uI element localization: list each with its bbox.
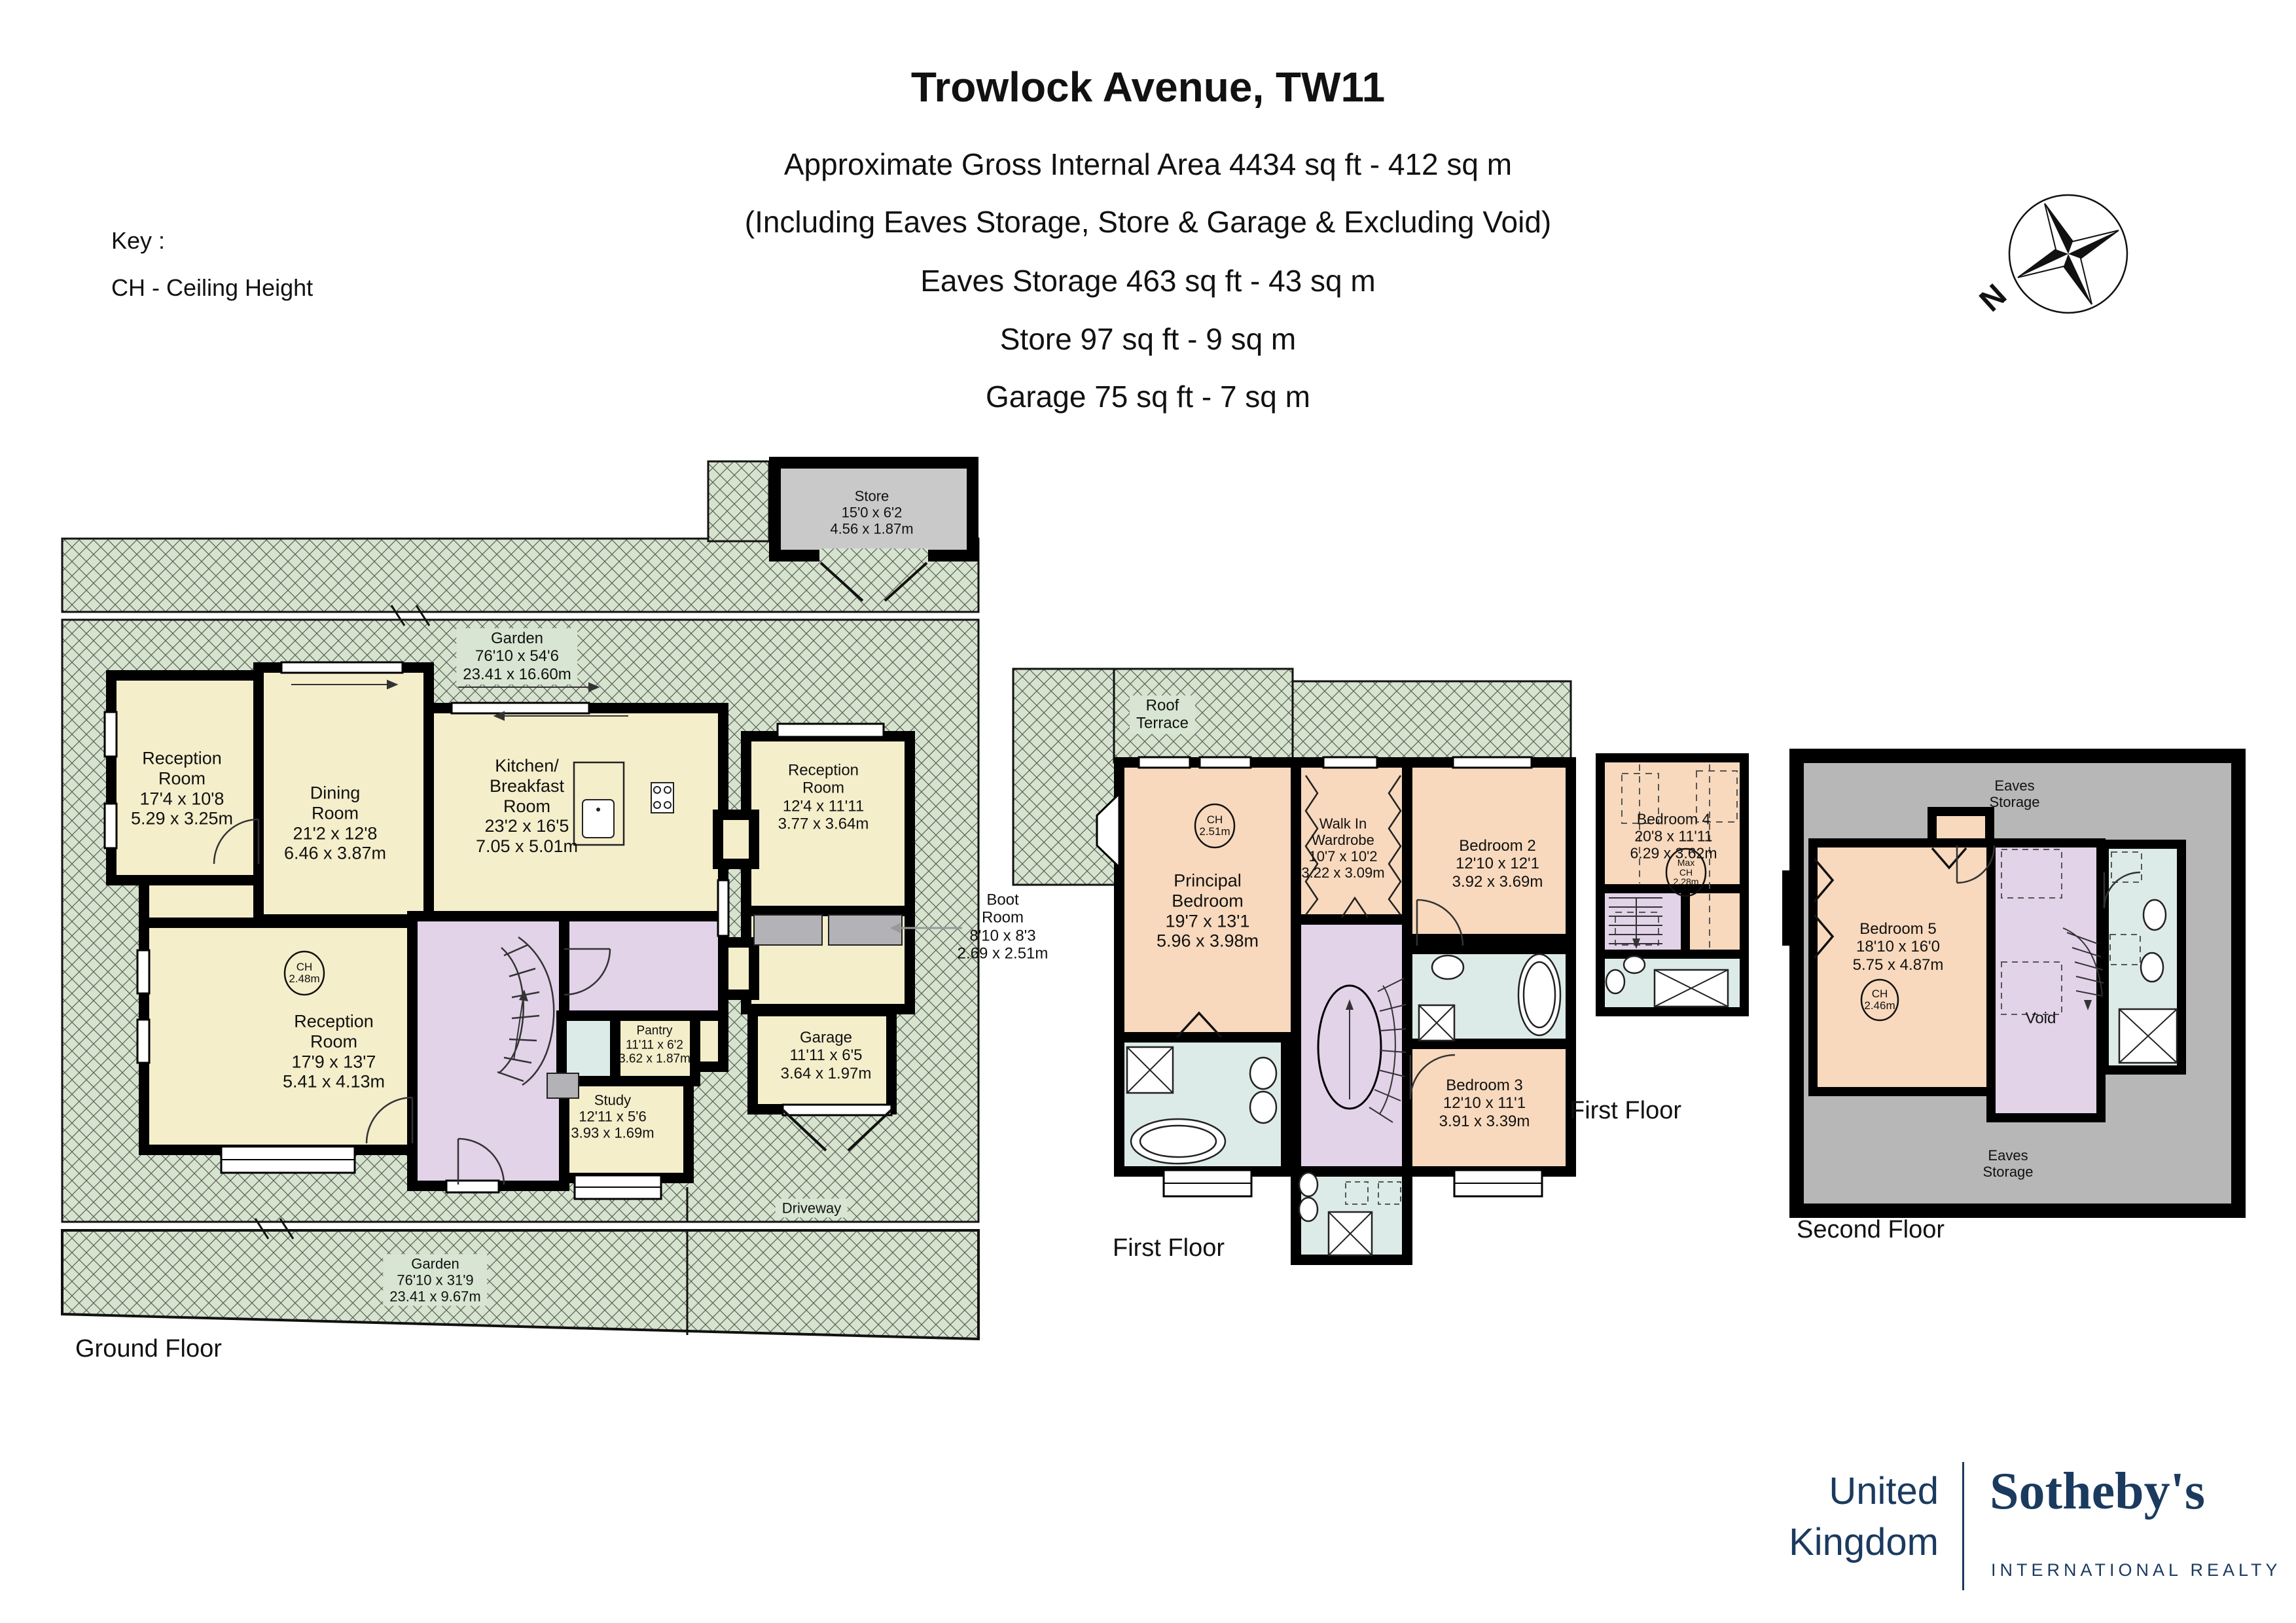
driveway-label: Driveway	[776, 1198, 848, 1217]
max-ceiling-height-badge: Max CH 2.28m	[1674, 858, 1699, 887]
room-label-garage: Garage 11'11 x 6'5 3.64 x 1.97m	[781, 1029, 872, 1082]
room-label-reception-right: Reception Room 12'4 x 11'11 3.77 x 3.64m	[778, 761, 869, 832]
room-label-principal: Principal Bedroom 19'7 x 13'1 5.96 x 3.9…	[1157, 870, 1259, 951]
room-label-study: Study 12'11 x 5'6 3.93 x 1.69m	[571, 1092, 654, 1141]
including-line: (Including Eaves Storage, Store & Garage…	[0, 204, 2296, 240]
eaves-storage-top-label: Eaves Storage	[1989, 777, 2039, 810]
room-label-bedroom5: Bedroom 5 18'10 x 16'0 5.75 x 4.87m	[1853, 920, 1944, 974]
room-label-bedroom2: Bedroom 2 12'10 x 12'1 3.92 x 3.69m	[1452, 837, 1543, 891]
room-label-reception-top: Reception Room 17'4 x 10'8 5.29 x 3.25m	[131, 748, 233, 829]
first-floor-small-caption: First Floor	[1570, 1097, 1681, 1125]
ceiling-height-badge-ground: CH 2.48m	[289, 961, 319, 985]
brand-tagline: INTERNATIONAL REALTY	[1991, 1560, 2282, 1580]
room-label-store: Store 15'0 x 6'2 4.56 x 1.87m	[830, 488, 913, 537]
room-label-pantry: Pantry 11'11 x 6'2 3.62 x 1.87m	[619, 1024, 691, 1067]
ceiling-height-badge-second: CH 2.46m	[1864, 988, 1895, 1012]
brand-region: United Kingdom	[1789, 1466, 1939, 1568]
first-floor-caption: First Floor	[1113, 1234, 1225, 1262]
eaves-storage-bottom-label: Eaves Storage	[1982, 1147, 2033, 1180]
second-floor-plan	[1782, 756, 2238, 1211]
void-label: Void	[2026, 1009, 2056, 1027]
second-floor-caption: Second Floor	[1797, 1216, 1945, 1244]
key-legend: Key : CH - Ceiling Height	[111, 217, 313, 312]
floorplan-page: Trowlock Avenue, TW11 Approximate Gross …	[0, 0, 2296, 1623]
gross-area-line: Approximate Gross Internal Area 4434 sq …	[0, 147, 2296, 182]
room-label-bedroom4: Bedroom 4 20'8 x 11'11 6.29 x 3.62m	[1630, 811, 1717, 863]
room-label-boot: Boot Room 8'10 x 8'3 2.69 x 2.51m	[958, 891, 1049, 962]
room-label-reception-bottom: Reception Room 17'9 x 13'7 5.41 x 4.13m	[283, 1011, 385, 1092]
ceiling-height-badge-first: CH 2.51m	[1199, 814, 1230, 838]
garden-bottom-label: Garden 76'10 x 31'9 23.41 x 9.67m	[383, 1254, 487, 1306]
page-title: Trowlock Avenue, TW11	[0, 63, 2296, 111]
first-floor-plan	[1013, 669, 1571, 1260]
first-floor-small-plan	[1600, 758, 1744, 1012]
roof-terrace-label: Roof Terrace	[1130, 696, 1195, 734]
garage-area-line: Garage 75 sq ft - 7 sq m	[0, 379, 2296, 414]
garden-top-label: Garden 76'10 x 54'6 23.41 x 16.60m	[456, 628, 577, 685]
eaves-area-line: Eaves Storage 463 sq ft - 43 sq m	[0, 263, 2296, 298]
ground-floor-caption: Ground Floor	[75, 1335, 222, 1363]
room-label-walkin: Walk In Wardrobe 10'7 x 10'2 3.22 x 3.09…	[1301, 815, 1384, 881]
room-label-bedroom3: Bedroom 3 12'10 x 11'1 3.91 x 3.39m	[1439, 1077, 1530, 1130]
room-label-dining: Dining Room 21'2 x 12'8 6.46 x 3.87m	[284, 783, 386, 863]
brand-name: Sotheby's	[1990, 1462, 2205, 1522]
brand-divider	[1962, 1462, 1964, 1590]
store-area-line: Store 97 sq ft - 9 sq m	[0, 321, 2296, 357]
room-label-kitchen: Kitchen/ Breakfast Room 23'2 x 16'5 7.05…	[476, 756, 578, 857]
